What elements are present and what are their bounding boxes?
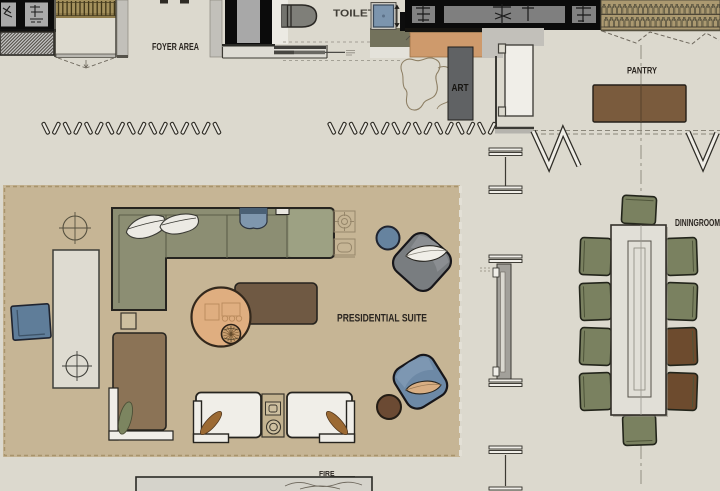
svg-text:PANTRY: PANTRY bbox=[627, 66, 658, 77]
svg-text:ART: ART bbox=[452, 82, 469, 94]
svg-text:FOYER AREA: FOYER AREA bbox=[152, 41, 199, 53]
svg-text:PRESIDENTIAL SUITE: PRESIDENTIAL SUITE bbox=[337, 313, 427, 325]
svg-text:TOILET: TOILET bbox=[333, 8, 376, 20]
svg-text:DININGROOM: DININGROOM bbox=[675, 217, 720, 229]
